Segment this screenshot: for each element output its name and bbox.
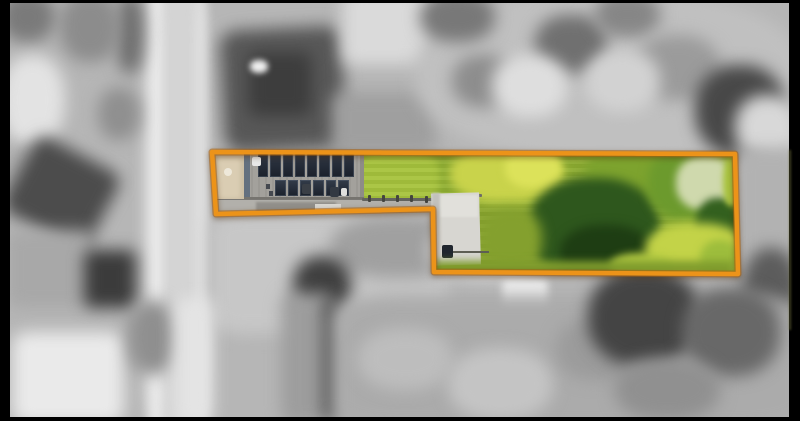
fence-post — [382, 195, 385, 202]
solar-panel — [313, 180, 324, 196]
fence-post — [425, 196, 428, 203]
roof-dot — [266, 184, 270, 189]
roof-dot — [269, 191, 273, 196]
bg-house — [10, 55, 65, 145]
grass-shade-strip — [433, 261, 733, 274]
bg-field-patch — [448, 348, 553, 417]
driveway-bg — [12, 332, 124, 417]
solar-panel — [275, 180, 286, 196]
fence-post — [396, 195, 399, 202]
bg-roof — [10, 230, 94, 308]
hedge — [116, 3, 144, 74]
solar-panel — [344, 150, 354, 177]
roof-right-edge — [360, 148, 364, 200]
solar-panel — [319, 150, 329, 177]
driveway-light — [216, 158, 240, 198]
fence-post — [410, 195, 413, 202]
pole-shadow — [453, 251, 489, 253]
roof-unit — [302, 184, 311, 194]
solar-panel — [288, 180, 299, 196]
bg-roof — [128, 300, 176, 375]
bg-tree-light — [492, 55, 567, 117]
bg-field-patch — [358, 328, 453, 390]
pad-object — [442, 245, 453, 258]
manhole-dot — [224, 168, 232, 176]
aerial-photo — [10, 3, 789, 417]
solar-row-1 — [258, 150, 354, 177]
roof-vent — [341, 188, 347, 196]
solar-panel — [307, 150, 317, 177]
solar-panel — [332, 150, 342, 177]
letterbox-frame — [0, 0, 800, 421]
roof-unit — [330, 187, 339, 197]
bg-roof — [98, 88, 140, 140]
tree-yellow — [505, 148, 561, 188]
bg-tree-light — [585, 50, 660, 112]
roof-vent — [252, 157, 261, 166]
bg-roof — [10, 3, 55, 42]
dark-roof — [84, 250, 136, 308]
solar-panel — [283, 150, 293, 177]
roof-left-edge — [244, 148, 250, 200]
solar-panel — [295, 150, 305, 177]
bg-roof — [60, 3, 120, 62]
bg-tree — [615, 358, 720, 417]
edge-artifact-line — [789, 150, 791, 330]
chimney — [250, 60, 268, 73]
pad-highlight — [434, 195, 478, 217]
bg-path — [175, 298, 213, 417]
fence-post — [368, 195, 371, 202]
bg-tree — [420, 3, 495, 42]
solar-panel — [270, 150, 280, 177]
